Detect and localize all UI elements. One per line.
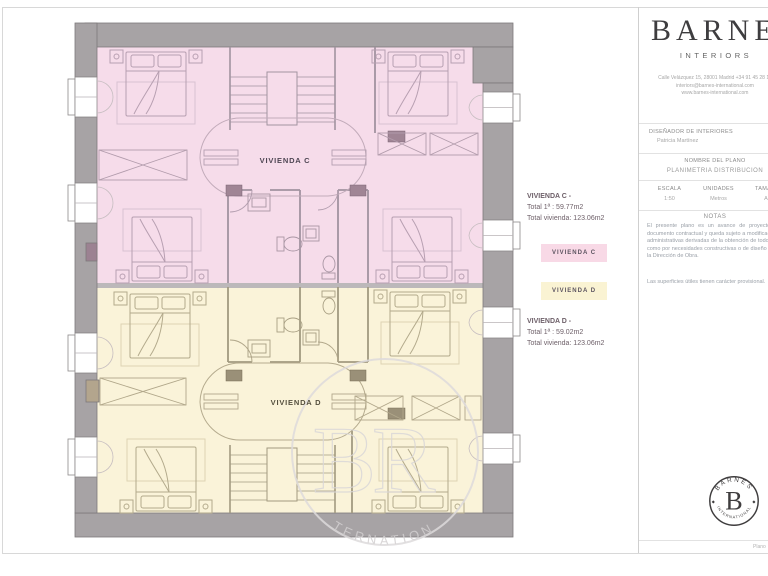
legend-c-title: VIVIENDA C - xyxy=(527,191,637,202)
notes-title: NOTAS xyxy=(639,214,768,220)
meta-unidades-value: Metros xyxy=(694,196,743,202)
legend-swatch-d: VIVIENDA D xyxy=(541,282,607,300)
plan-name-label: NOMBRE DEL PLANO xyxy=(639,158,768,164)
notes-paragraph-1: El presente plano es un avance de proyec… xyxy=(647,223,768,261)
legend-swatch-c-label: VIVIENDA C xyxy=(552,250,596,256)
plan-sheet: BR INTERNATIONAL VIVIENDA C VIVIENDA D V… xyxy=(0,0,768,576)
designer-label: DISEÑADOR DE INTERIORES xyxy=(649,129,733,135)
seal-diamond-icon: ◆ xyxy=(752,499,756,504)
notes-paragraph-2: Las superficies útiles tienen carácter p… xyxy=(647,279,768,287)
plan-name-value: PLANIMETRIA DISTRIBUCION xyxy=(639,168,768,174)
divider xyxy=(639,210,768,211)
watermark-monogram: BR xyxy=(313,407,436,513)
barnes-seal: BARNES B INTERNATIONAL ◆ ◆ xyxy=(703,470,765,532)
legend-d-floor-area: Total 1ª : 59.02m2 xyxy=(527,327,637,338)
designer-name: Patricia Martínez xyxy=(657,138,698,144)
legend-c-floor-area: Total 1ª : 59.77m2 xyxy=(527,202,637,213)
brand-address: Calle Velázquez 15, 28001 Madrid +34 91 … xyxy=(639,75,768,98)
legend-swatch-d-label: VIVIENDA D xyxy=(552,288,596,294)
plan-label-vivienda-c: VIVIENDA C xyxy=(260,156,311,165)
legend-vivienda-d: VIVIENDA D - Total 1ª : 59.02m2 Total vi… xyxy=(527,316,637,349)
meta-table: ESCALA 1:50 UNIDADES Metros TAMAÑO A3 VE… xyxy=(645,186,768,202)
legend-swatch-c: VIVIENDA C xyxy=(541,244,607,262)
divider xyxy=(639,540,768,541)
legend-d-title: VIVIENDA D - xyxy=(527,316,637,327)
legend-d-total-area: Total vivienda: 123.06m2 xyxy=(527,338,637,349)
legend-vivienda-c: VIVIENDA C - Total 1ª : 59.77m2 Total vi… xyxy=(527,191,637,224)
address-line-3: www.barnes-international.com xyxy=(639,90,768,98)
meta-col-tamano: TAMAÑO A3 xyxy=(743,186,768,202)
divider xyxy=(639,153,768,154)
meta-col-unidades: UNIDADES Metros xyxy=(694,186,743,202)
brand-subtitle: INTERIORS xyxy=(651,51,768,60)
address-line-1: Calle Velázquez 15, 28001 Madrid +34 91 … xyxy=(639,75,768,83)
seal-monogram: B xyxy=(725,487,742,516)
party-wall xyxy=(97,283,483,288)
page-label: Plano xyxy=(753,544,766,550)
divider xyxy=(639,180,768,181)
title-block: BARNES INTERIORS Calle Velázquez 15, 280… xyxy=(638,7,768,553)
plan-label-vivienda-d: VIVIENDA D xyxy=(271,398,322,407)
meta-tamano-value: A3 xyxy=(743,196,768,202)
meta-col-escala: ESCALA 1:50 xyxy=(645,186,694,202)
divider xyxy=(639,123,768,124)
meta-escala-value: 1:50 xyxy=(645,196,694,202)
address-line-2: interiors@barnes-international.com xyxy=(639,83,768,91)
seal-diamond-icon: ◆ xyxy=(712,499,716,504)
legend-c-total-area: Total vivienda: 123.06m2 xyxy=(527,213,637,224)
brand-wordmark: BARNES xyxy=(651,14,768,48)
